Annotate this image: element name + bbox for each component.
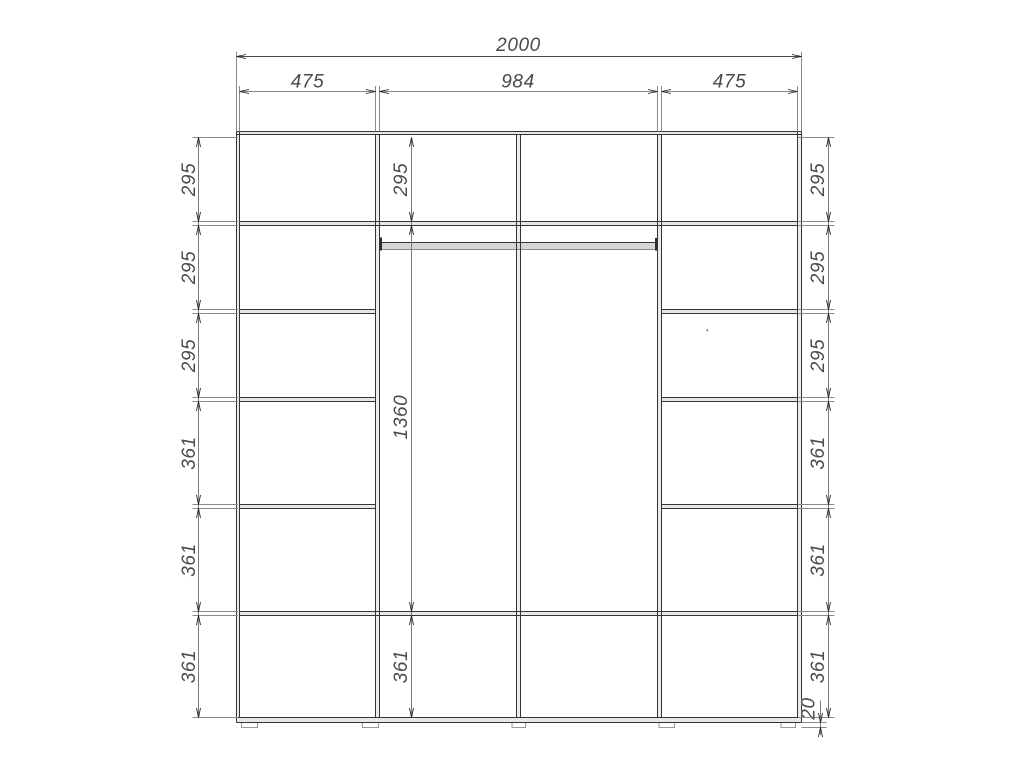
svg-text:295: 295 [179, 251, 200, 286]
svg-text:295: 295 [808, 251, 829, 286]
svg-text:361: 361 [808, 436, 829, 470]
svg-text:295: 295 [808, 339, 829, 374]
svg-text:295: 295 [179, 339, 200, 374]
svg-text:361: 361 [179, 650, 200, 684]
svg-text:361: 361 [391, 650, 412, 684]
svg-text:295: 295 [808, 163, 829, 198]
svg-text:361: 361 [179, 543, 200, 577]
svg-text:2000: 2000 [495, 35, 541, 56]
svg-text:361: 361 [179, 436, 200, 470]
svg-text:295: 295 [179, 163, 200, 198]
svg-text:984: 984 [501, 71, 535, 92]
svg-text:20: 20 [799, 697, 820, 720]
svg-text:1360: 1360 [391, 395, 412, 440]
svg-text:361: 361 [808, 650, 829, 684]
svg-text:475: 475 [291, 71, 325, 92]
svg-text:475: 475 [713, 71, 747, 92]
svg-text:361: 361 [808, 543, 829, 577]
svg-text:295: 295 [391, 163, 412, 198]
